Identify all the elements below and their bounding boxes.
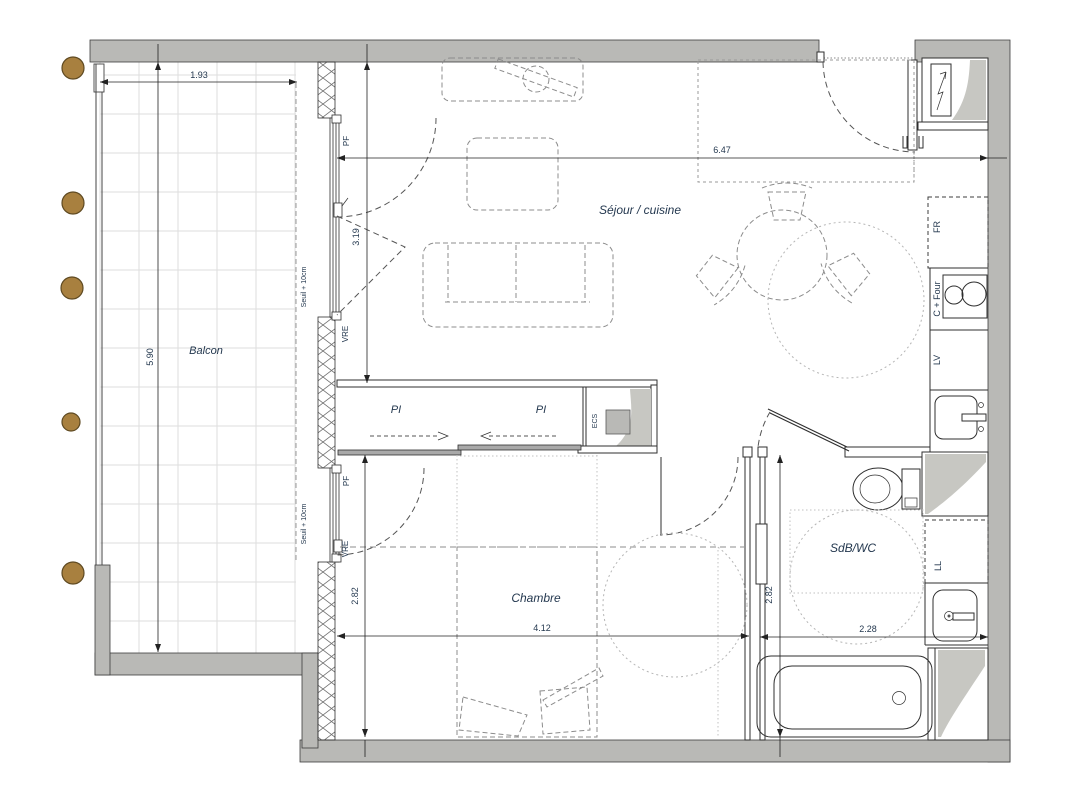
- wall-balcony-bottom: [95, 653, 318, 675]
- dining-table: [689, 183, 877, 308]
- bathroom-door-leaf: [768, 409, 849, 451]
- faucet: [953, 613, 974, 620]
- margin-dot: [61, 277, 83, 299]
- bathroom-label: SdB/WC: [830, 541, 876, 555]
- dim-label-bathroom-depth: 2.82: [764, 586, 774, 604]
- dim-label-balcony-length: 5.90: [145, 348, 155, 366]
- wall-top: [90, 40, 819, 62]
- living-threshold-label: Seuil + 10cm: [301, 267, 308, 308]
- cooktop-oven: [943, 275, 987, 318]
- turning-circle-bedroom: [603, 533, 747, 677]
- wall-balcony-left: [95, 565, 110, 675]
- closet-divider: [583, 387, 586, 448]
- dim-label-bedroom-width: 4.12: [533, 623, 551, 633]
- living-vre-label: VRE: [341, 326, 350, 342]
- sliding-door-left: [338, 450, 461, 455]
- entry-door-leaf: [908, 60, 917, 150]
- water-heater: [606, 410, 630, 434]
- electrical-panel: [918, 58, 988, 130]
- dim-label-living-depth: 3.19: [351, 228, 361, 246]
- entry-door: [817, 52, 923, 178]
- hob-oven-label: C + Four: [932, 281, 942, 316]
- closet-bottom-wall: [578, 446, 657, 453]
- washing-machine-label: LL: [933, 561, 943, 571]
- dimensions: 1.93 5.90 6.47 3.19 2.82 4.12 2.82 2.28: [100, 44, 1007, 757]
- living-pf-label: PF: [342, 136, 351, 146]
- washbasin: [933, 590, 977, 641]
- sofa: [423, 243, 613, 327]
- folded-item: [543, 668, 603, 707]
- floor-plan-page: PI PI ECS: [0, 0, 1092, 800]
- dim-label-balcony-width: 1.93: [190, 70, 208, 80]
- living-kitchen-label: Séjour / cuisine: [599, 203, 681, 217]
- technical-duct-lower: [928, 648, 988, 740]
- toilet: [853, 468, 920, 510]
- closet-label-right: PI: [536, 404, 546, 416]
- margin-dot: [62, 57, 84, 79]
- bedroom-threshold-label: Seuil + 10cm: [301, 504, 308, 545]
- tv: [495, 59, 577, 97]
- wall-bottom: [300, 740, 1010, 762]
- wall-left-lower: [302, 653, 318, 748]
- dim-label-bathroom-width: 2.28: [859, 624, 877, 634]
- bathroom-walls: [743, 409, 930, 740]
- technical-duct-upper: [922, 452, 988, 516]
- panel-shelf: [918, 122, 988, 130]
- bathroom-fixtures: [757, 468, 932, 737]
- exterior-walls: [90, 40, 1010, 762]
- balcony-railing: [94, 64, 104, 565]
- tv-base: [523, 66, 549, 92]
- margin-dots: [61, 57, 84, 584]
- washing-machine: [925, 520, 988, 583]
- kitchen-zone-outline: [698, 60, 914, 182]
- tv-stand: [442, 58, 583, 101]
- closet-right-wall: [651, 385, 657, 448]
- kitchen-column: FR C + Four LV LL: [922, 197, 988, 740]
- margin-dot: [62, 562, 84, 584]
- bedroom-pf-label: PF: [342, 476, 351, 486]
- room-labels: Balcon Séjour / cuisine Chambre SdB/WC: [189, 203, 876, 605]
- bed: [457, 547, 597, 737]
- kitchen-sink: [935, 396, 986, 439]
- turning-circle-living: [768, 222, 924, 378]
- turning-circle-bathroom: [790, 510, 924, 644]
- bedroom-door: [660, 457, 738, 535]
- chair: [540, 687, 590, 734]
- fridge-label: FR: [932, 221, 942, 233]
- closet-label-left: PI: [391, 404, 401, 416]
- window-handle: [334, 203, 342, 217]
- dim-label-living-width: 6.47: [713, 145, 731, 155]
- coffee-table: [467, 138, 558, 210]
- faucet: [962, 414, 986, 421]
- bedroom-label: Chambre: [511, 591, 561, 605]
- balcony-label: Balcon: [189, 345, 223, 357]
- sliding-door-right: [458, 445, 581, 450]
- desk: [459, 697, 527, 736]
- water-heater-label: ECS: [592, 413, 599, 428]
- floor-plan-drawing: PI PI ECS: [0, 0, 1092, 800]
- bedroom-vre-label: VRE: [341, 541, 350, 557]
- dim-label-bedroom-depth: 2.82: [350, 587, 360, 605]
- living-room-furniture: [423, 58, 924, 378]
- door-pocket: [756, 524, 767, 584]
- closet: PI PI ECS: [337, 380, 657, 455]
- bathtub: [757, 656, 932, 737]
- closet-top-wall: [337, 380, 657, 387]
- margin-dot: [62, 413, 80, 431]
- balcony-tiles: [100, 62, 296, 653]
- margin-dot: [62, 192, 84, 214]
- bathroom-top-wall: [845, 447, 930, 457]
- dishwasher-label: LV: [932, 355, 942, 365]
